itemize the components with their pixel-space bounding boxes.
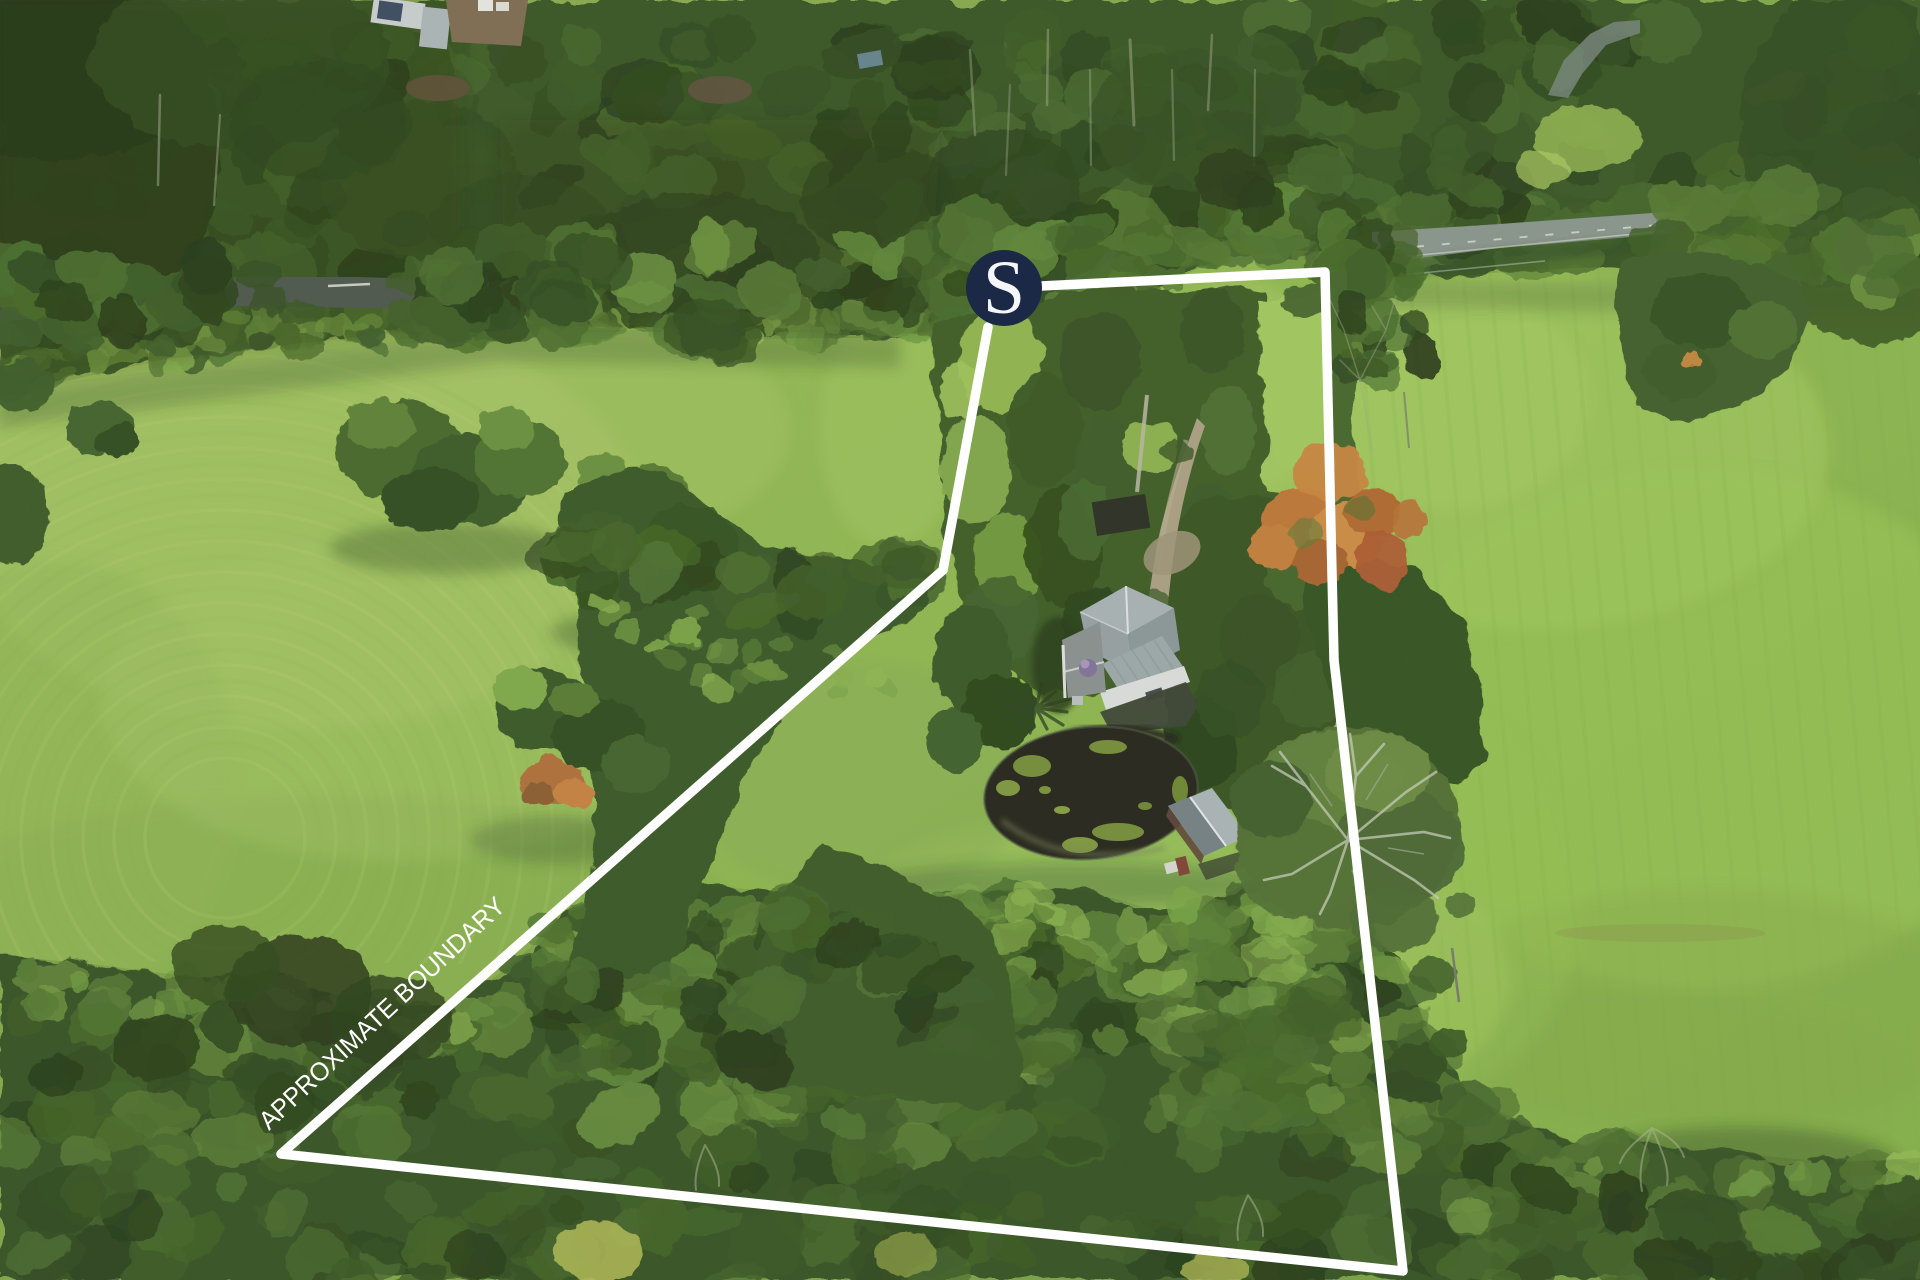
svg-text:S: S <box>983 246 1025 330</box>
